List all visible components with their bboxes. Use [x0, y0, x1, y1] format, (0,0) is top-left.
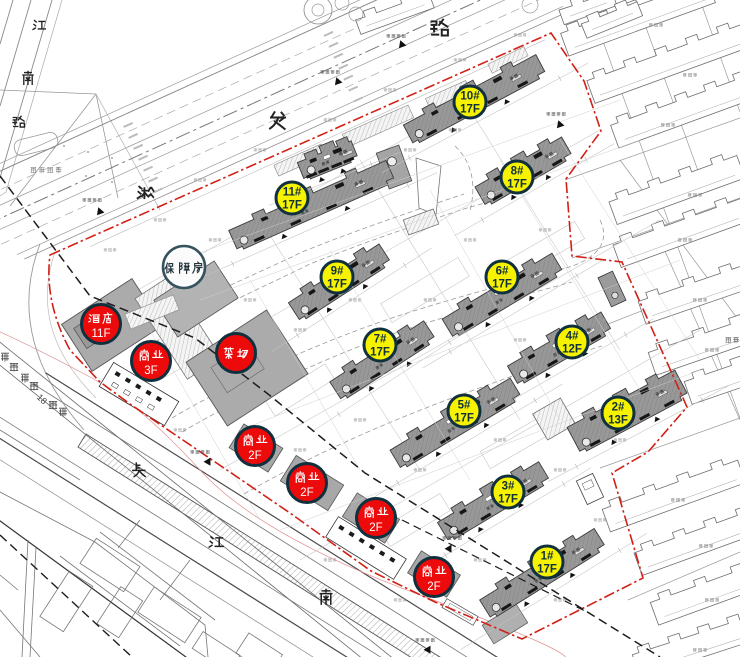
svg-text:2F: 2F [300, 487, 313, 499]
svg-text:17F: 17F [498, 494, 518, 506]
svg-text:13F: 13F [608, 415, 628, 427]
svg-text:6#: 6# [496, 266, 509, 278]
svg-text:7#: 7# [374, 334, 387, 346]
svg-text:2#: 2# [612, 402, 625, 414]
svg-text:2F: 2F [427, 581, 440, 593]
svg-text:8#: 8# [511, 166, 524, 178]
svg-text:3#: 3# [502, 481, 515, 493]
svg-text:1#: 1# [541, 551, 554, 563]
svg-text:4#: 4# [566, 331, 579, 343]
svg-text:17F: 17F [327, 279, 347, 291]
svg-text:9#: 9# [331, 266, 344, 278]
svg-text:11#: 11# [283, 187, 302, 199]
svg-text:17F: 17F [370, 347, 390, 359]
svg-text:17F: 17F [282, 200, 302, 212]
svg-text:3F: 3F [144, 365, 157, 377]
svg-text:11F: 11F [92, 328, 111, 340]
svg-text:17F: 17F [537, 564, 557, 576]
svg-text:12F: 12F [562, 344, 582, 356]
svg-text:2F: 2F [369, 522, 382, 534]
svg-text:17F: 17F [460, 104, 480, 116]
svg-text:17F: 17F [492, 279, 512, 291]
svg-text:17F: 17F [454, 413, 474, 425]
svg-text:2F: 2F [248, 450, 261, 462]
svg-text:17F: 17F [507, 179, 527, 191]
svg-text:10#: 10# [460, 91, 480, 103]
svg-text:5#: 5# [458, 400, 471, 412]
